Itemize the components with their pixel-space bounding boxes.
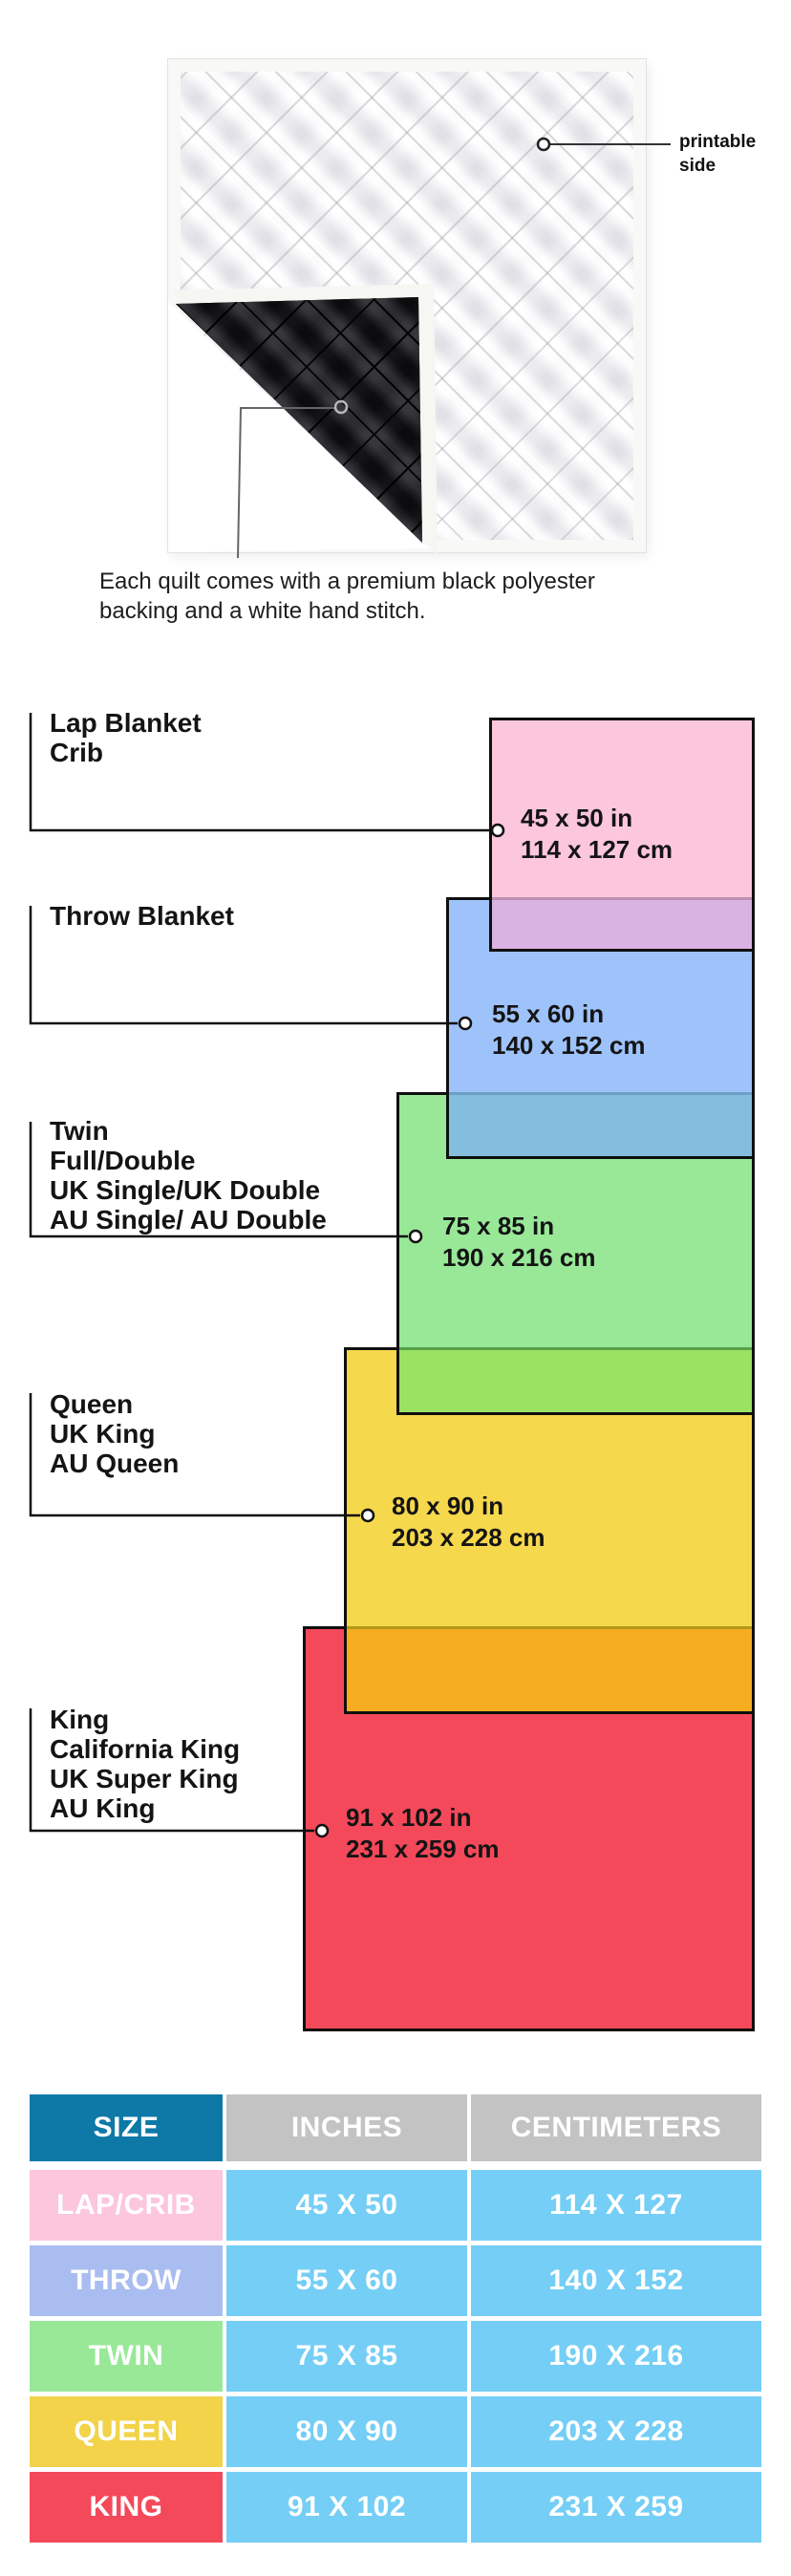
table-row-twin-cm: 190 X 216 bbox=[471, 2321, 761, 2392]
photo-caption-line1: Each quilt comes with a premium black po… bbox=[99, 567, 730, 596]
table-row-queen-inches: 80 X 90 bbox=[226, 2396, 467, 2467]
dims-king: 91 x 102 in 231 x 259 cm bbox=[346, 1802, 499, 1865]
dims-king-cm: 231 x 259 cm bbox=[346, 1834, 499, 1865]
table-header-centimeters: CENTIMETERS bbox=[471, 2094, 761, 2161]
photo-caption: Each quilt comes with a premium black po… bbox=[99, 567, 730, 626]
photo-caption-line2: backing and a white hand stitch. bbox=[99, 596, 730, 626]
dims-twin-inches: 75 x 85 in bbox=[442, 1211, 595, 1242]
dims-throw: 55 x 60 in 140 x 152 cm bbox=[492, 998, 645, 1062]
label-king-line3: UK Super King bbox=[50, 1764, 240, 1793]
label-king-line4: AU King bbox=[50, 1793, 240, 1823]
dims-lap-inches: 45 x 50 in bbox=[521, 803, 673, 834]
dims-lap-cm: 114 x 127 cm bbox=[521, 834, 673, 866]
table-row-lap-cm: 114 X 127 bbox=[471, 2170, 761, 2241]
dims-twin-cm: 190 x 216 cm bbox=[442, 1242, 595, 1274]
label-king: King California King UK Super King AU Ki… bbox=[50, 1705, 240, 1823]
overlap-queen-king bbox=[347, 1626, 752, 1711]
label-twin: Twin Full/Double UK Single/UK Double AU … bbox=[50, 1116, 327, 1234]
dims-twin: 75 x 85 in 190 x 216 cm bbox=[442, 1211, 595, 1274]
label-throw-line1: Throw Blanket bbox=[50, 901, 234, 931]
label-queen-line3: AU Queen bbox=[50, 1449, 179, 1478]
quilt-size-guide: printable side Each quilt comes with a p… bbox=[0, 0, 791, 2576]
overlap-twin-queen bbox=[399, 1347, 752, 1412]
table-row-throw-cm: 140 X 152 bbox=[471, 2245, 761, 2316]
dims-king-inches: 91 x 102 in bbox=[346, 1802, 499, 1834]
dims-queen: 80 x 90 in 203 x 228 cm bbox=[392, 1491, 545, 1554]
table-row-queen-cm: 203 X 228 bbox=[471, 2396, 761, 2467]
label-lap: Lap Blanket Crib bbox=[50, 708, 202, 767]
label-queen-line1: Queen bbox=[50, 1389, 179, 1419]
table-row-twin-size: TWIN bbox=[30, 2321, 223, 2392]
dims-lap: 45 x 50 in 114 x 127 cm bbox=[521, 803, 673, 866]
table-header-size: SIZE bbox=[30, 2094, 223, 2161]
label-twin-line1: Twin bbox=[50, 1116, 327, 1146]
overlap-throw-twin bbox=[449, 1092, 752, 1156]
label-king-line1: King bbox=[50, 1705, 240, 1734]
dims-queen-inches: 80 x 90 in bbox=[392, 1491, 545, 1522]
dims-throw-cm: 140 x 152 cm bbox=[492, 1030, 645, 1062]
printable-side-label: printable side bbox=[679, 130, 784, 178]
table-row-throw-inches: 55 X 60 bbox=[226, 2245, 467, 2316]
overlap-lap-throw bbox=[492, 897, 752, 949]
dims-queen-cm: 203 x 228 cm bbox=[392, 1522, 545, 1554]
table-row-lap-inches: 45 X 50 bbox=[226, 2170, 467, 2241]
table-row-king-size: KING bbox=[30, 2472, 223, 2543]
table-row-lap-size: LAP/CRIB bbox=[30, 2170, 223, 2241]
label-twin-line2: Full/Double bbox=[50, 1146, 327, 1175]
table-row-throw-size: THROW bbox=[30, 2245, 223, 2316]
label-queen-line2: UK King bbox=[50, 1419, 179, 1449]
table-row-king-cm: 231 X 259 bbox=[471, 2472, 761, 2543]
label-king-line2: California King bbox=[50, 1734, 240, 1764]
dims-throw-inches: 55 x 60 in bbox=[492, 998, 645, 1030]
printable-side-label-line2: side bbox=[679, 154, 784, 178]
label-lap-line2: Crib bbox=[50, 738, 202, 767]
label-twin-line3: UK Single/UK Double bbox=[50, 1175, 327, 1205]
size-table: SIZE INCHES CENTIMETERS LAP/CRIB 45 X 50… bbox=[30, 2094, 761, 2543]
table-header-inches: INCHES bbox=[226, 2094, 467, 2161]
label-lap-line1: Lap Blanket bbox=[50, 708, 202, 738]
table-row-twin-inches: 75 X 85 bbox=[226, 2321, 467, 2392]
label-twin-line4: AU Single/ AU Double bbox=[50, 1205, 327, 1234]
table-row-king-inches: 91 X 102 bbox=[226, 2472, 467, 2543]
table-row-queen-size: QUEEN bbox=[30, 2396, 223, 2467]
label-queen: Queen UK King AU Queen bbox=[50, 1389, 179, 1478]
printable-side-label-line1: printable bbox=[679, 130, 784, 154]
label-throw: Throw Blanket bbox=[50, 901, 234, 931]
